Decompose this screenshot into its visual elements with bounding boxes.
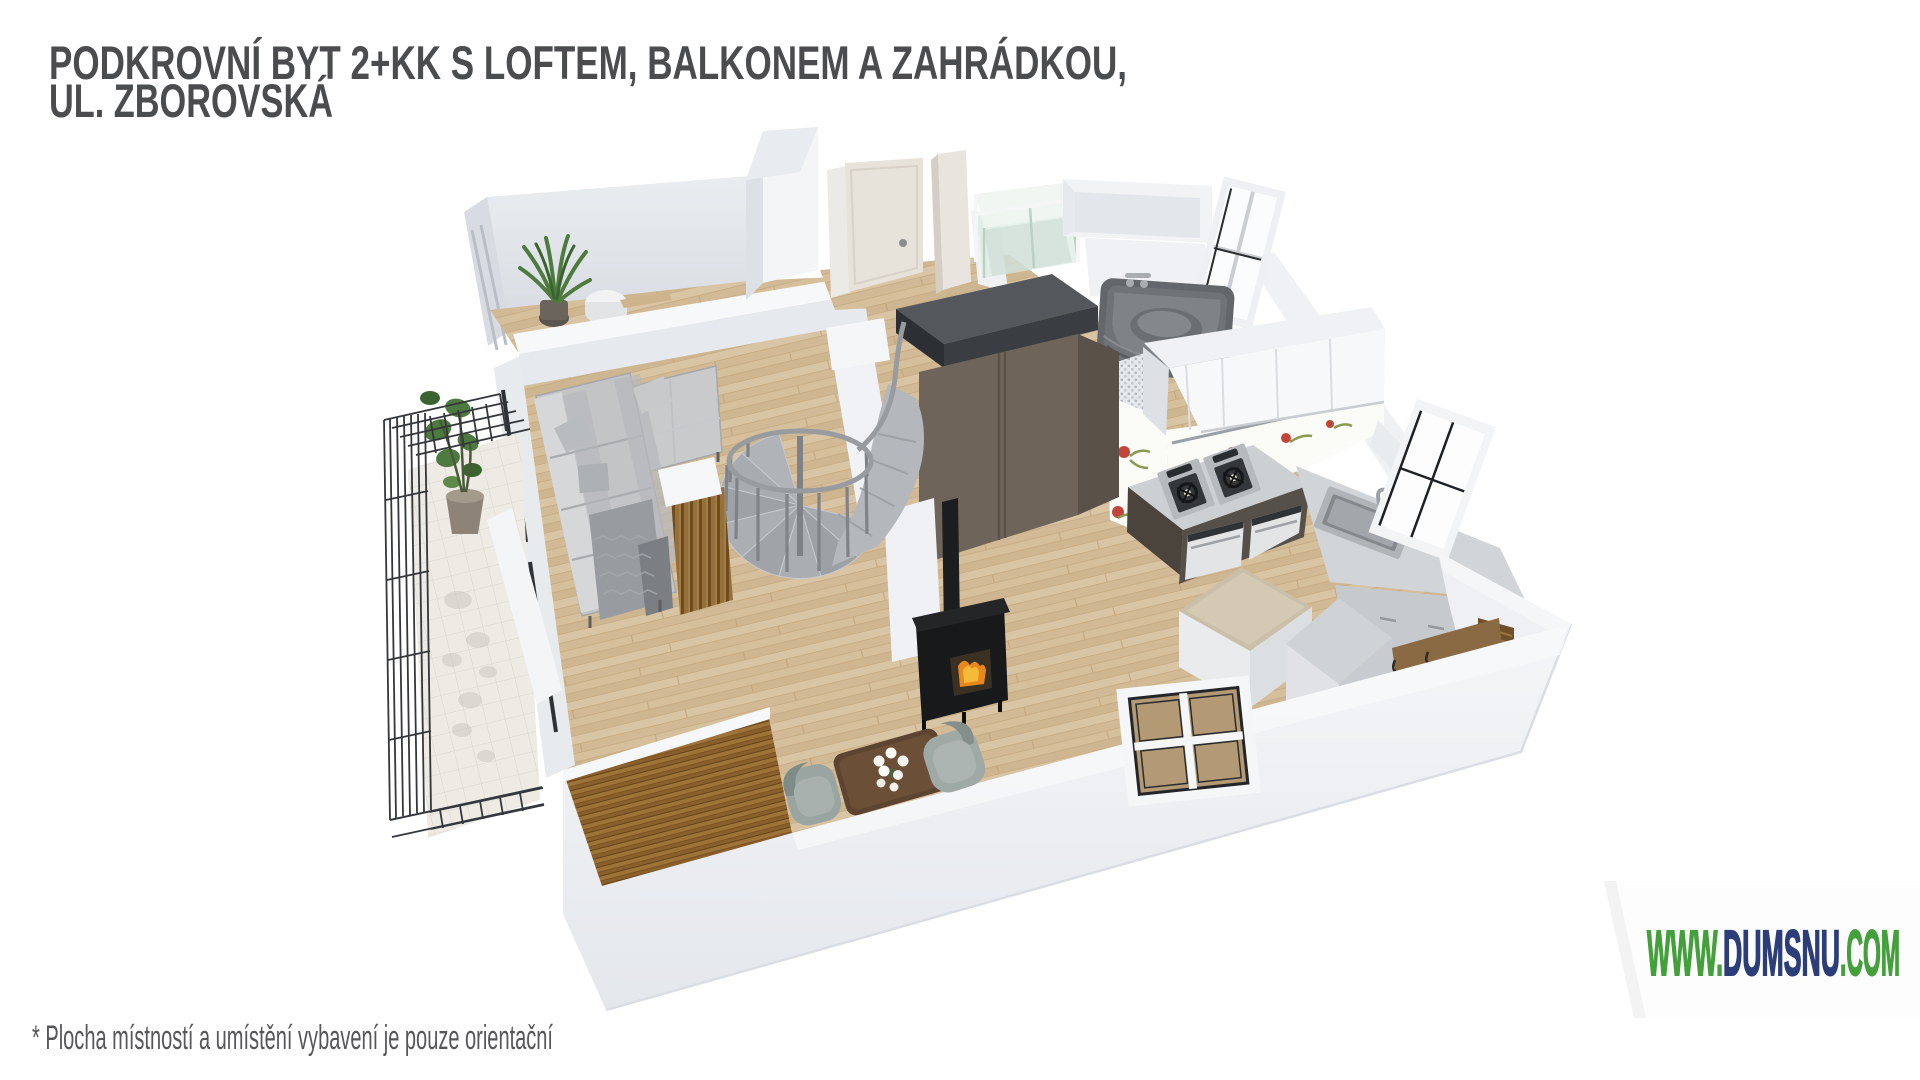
svg-text:UL. ZBOROVSKÁ: UL. ZBOROVSKÁ xyxy=(49,74,333,127)
svg-text:.COM: .COM xyxy=(1840,917,1900,989)
svg-text:WWW.: WWW. xyxy=(1647,917,1723,989)
svg-text:* Plocha místností a umístění: * Plocha místností a umístění vybavení j… xyxy=(32,1019,553,1057)
svg-text:DUMSNU: DUMSNU xyxy=(1723,917,1840,989)
